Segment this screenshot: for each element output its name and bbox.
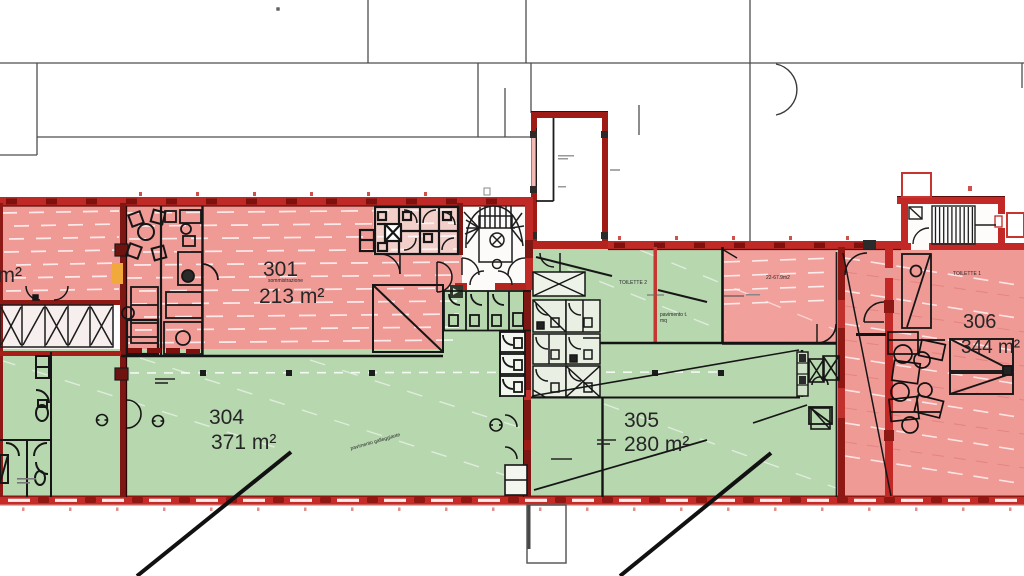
- svg-text:305: 305: [624, 409, 659, 432]
- svg-text:sommistrazione: sommistrazione: [268, 278, 303, 284]
- svg-text:TOILETTE 2: TOILETTE 2: [619, 280, 647, 286]
- svg-text:3 m²: 3 m²: [0, 264, 22, 287]
- svg-text:213 m²: 213 m²: [259, 285, 324, 308]
- svg-text:371 m²: 371 m²: [211, 431, 276, 454]
- svg-text:TOILETTE 1: TOILETTE 1: [953, 271, 981, 277]
- svg-text:306: 306: [963, 311, 996, 333]
- svg-text:22-67.9m2: 22-67.9m2: [766, 275, 790, 281]
- svg-text:304: 304: [209, 406, 244, 429]
- svg-text:280 m²: 280 m²: [624, 433, 689, 456]
- svg-text:mq: mq: [660, 318, 667, 324]
- svg-text:344 m²: 344 m²: [961, 337, 1020, 358]
